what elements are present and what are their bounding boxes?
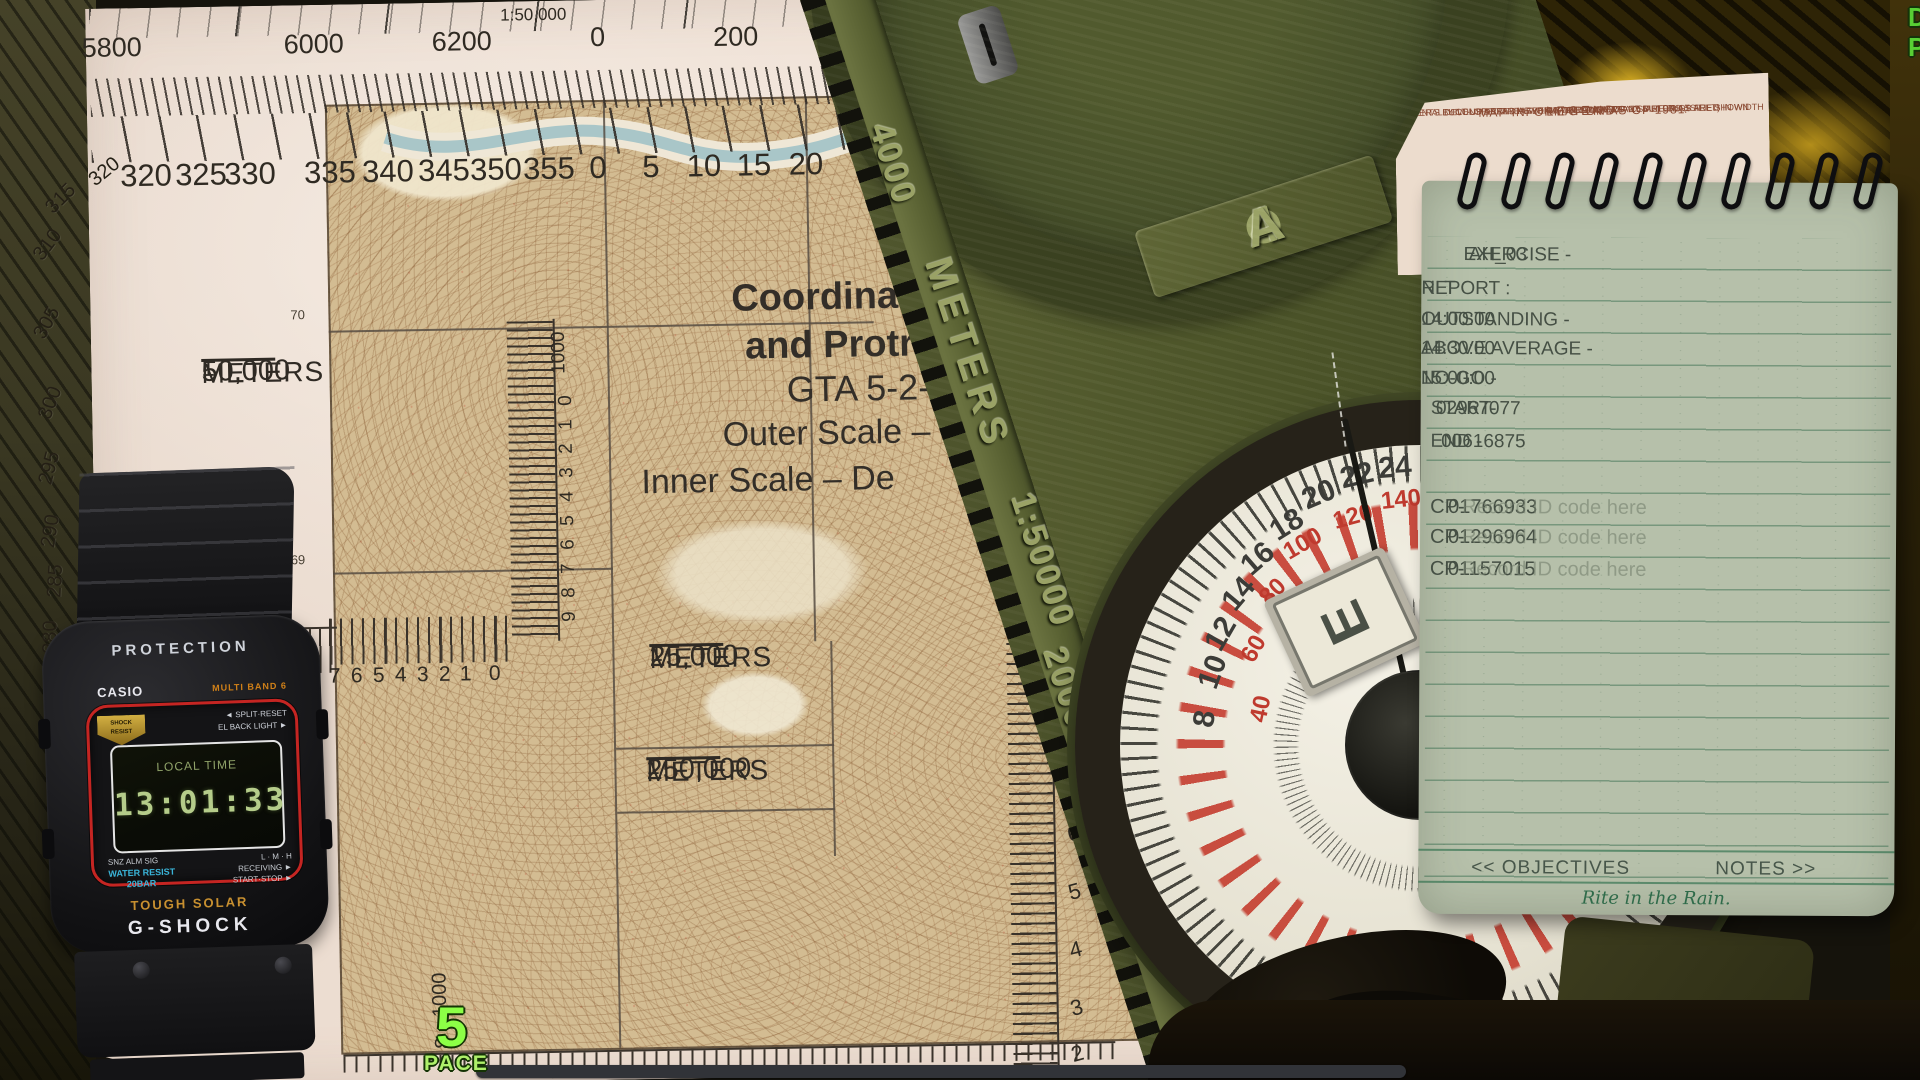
watch-lcd: LOCAL TIME 13:01:33: [110, 740, 286, 854]
legend-line: MAP FIELD CKED: [1544, 104, 1619, 119]
pace-count-label: PACE: [424, 1052, 489, 1076]
multiband-label: MULTI BAND 6: [212, 680, 287, 693]
objectives-page-button[interactable]: << OBJECTIVES: [1471, 857, 1630, 880]
button-labels-right: ◄ SPLIT·RESET EL BACK LIGHT ►: [157, 708, 288, 737]
start-row: START- 02967077: [1431, 398, 1907, 426]
watch-face-panel: SHOCK RESIST ◄ SPLIT·RESET EL BACK LIGHT…: [85, 698, 303, 887]
pace-progress-bar[interactable]: [476, 1065, 1406, 1078]
bezel-text: PROTECTION: [41, 635, 319, 662]
dial-mils-number: 40: [1245, 693, 1278, 725]
report-row: REPORT : NLT: [1421, 278, 1897, 306]
notebook-brand: Rite in the Rain.: [1582, 888, 1731, 910]
watch-button[interactable]: [38, 719, 51, 749]
watch-button[interactable]: [42, 829, 55, 859]
exercise-row: EXERCISE - AH_03: [1463, 244, 1920, 272]
gshock-logo: G-SHOCK: [51, 911, 330, 943]
cp-id-input[interactable]: Record ID code here: [1462, 526, 1647, 550]
shock-resist-badge: SHOCK RESIST: [97, 714, 146, 746]
above-average-row: ABOVE AVERAGE - 14:30:00: [1421, 338, 1897, 366]
watch-strap-bottom: [74, 944, 316, 1058]
watch-button[interactable]: [316, 709, 329, 739]
watch-case: PROTECTION CASIO MULTI BAND 6 SHOCK RESI…: [41, 613, 330, 954]
dial-degree-number: 24: [1377, 450, 1413, 486]
field-notebook[interactable]: EXERCISE - AH_03 REPORT : NLT OUTSTANDIN…: [1418, 181, 1898, 916]
pace-count-value: 5: [436, 994, 467, 1059]
outstanding-row: OUTSTANDING - 14:00:00: [1421, 309, 1897, 337]
strap-screw: [132, 961, 150, 979]
gshock-watch[interactable]: PROTECTION CASIO MULTI BAND 6 SHOCK RESI…: [17, 465, 358, 1080]
casio-logo: CASIO: [97, 684, 144, 701]
landnav-game-screen: 1:50,000 5800 6000 6200 0 200 320 325 33…: [0, 0, 1920, 1080]
lcd-time: 13:01:33: [113, 782, 282, 824]
watermark-line: WORK IN PROGRESS: [1908, 2, 1920, 62]
watch-strap-top: [77, 466, 295, 634]
watch-button[interactable]: [320, 819, 333, 849]
end-row: END - 00616875: [1430, 431, 1906, 459]
cp-row: CP- 01157015 Record ID code here: [1430, 558, 1906, 586]
cp-id-input[interactable]: Record ID code here: [1462, 558, 1647, 582]
no-go-row: NO-GO - 15:00:00: [1421, 368, 1897, 396]
cp-id-input[interactable]: Record ID code here: [1462, 496, 1647, 520]
brand-row: CASIO MULTI BAND 6: [85, 678, 297, 701]
cardinal-letter: E: [1306, 590, 1383, 653]
cp-row: CP- 01296964 Record ID code here: [1430, 526, 1906, 554]
strap-screw: [274, 957, 292, 975]
dial-mils-number: 140: [1380, 484, 1423, 516]
notes-page-button[interactable]: NOTES >>: [1715, 858, 1816, 881]
cp-row: CP- 01766933 Record ID code here: [1430, 496, 1906, 524]
lcd-mode-label: LOCAL TIME: [112, 756, 280, 776]
